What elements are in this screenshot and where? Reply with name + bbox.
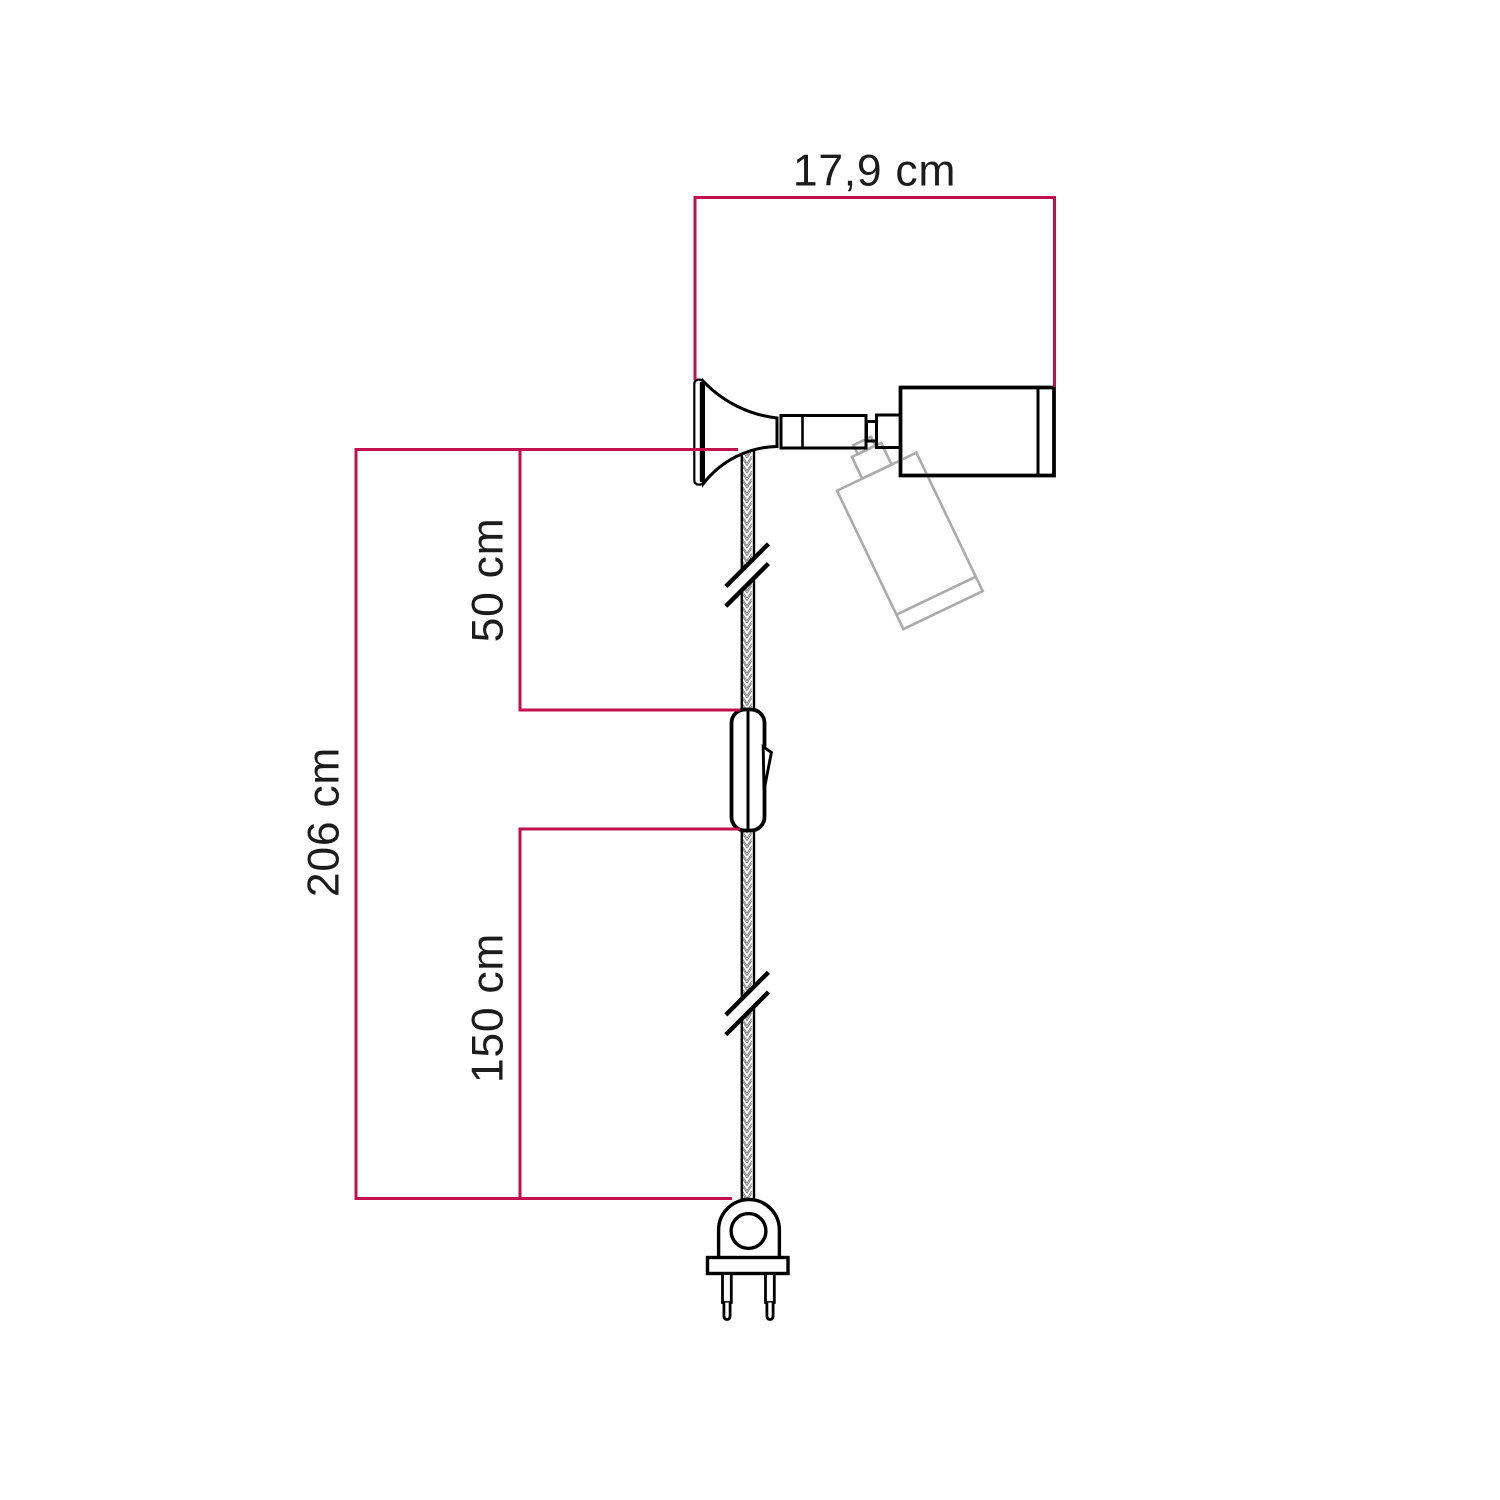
svg-text:17,9 cm: 17,9 cm xyxy=(793,147,956,196)
svg-text:150 cm: 150 cm xyxy=(464,933,513,1083)
svg-text:206 cm: 206 cm xyxy=(300,747,349,897)
svg-text:50 cm: 50 cm xyxy=(464,518,513,643)
